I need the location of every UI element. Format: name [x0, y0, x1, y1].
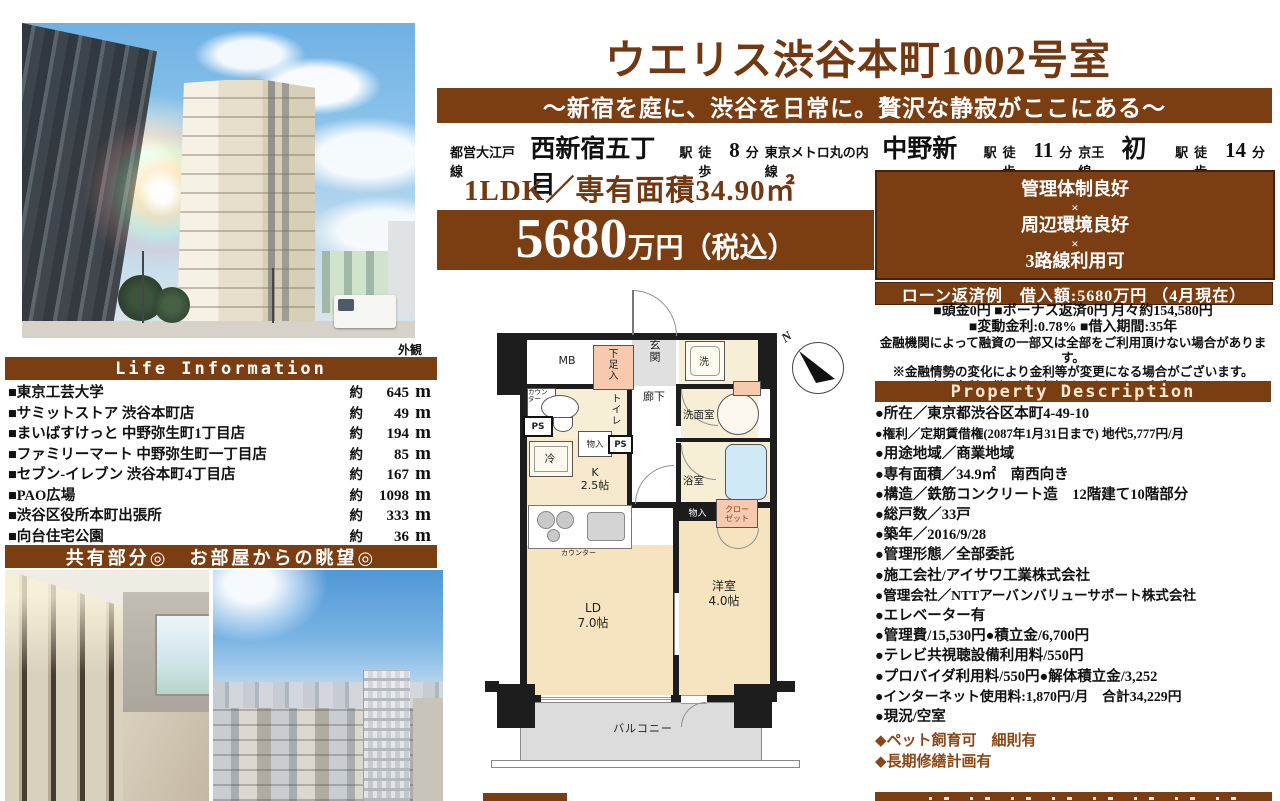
life-row: ■PAO広場 約 1098 m	[5, 484, 437, 505]
poi-name: ■PAO広場	[5, 484, 333, 505]
clipped-text-tops	[920, 797, 1237, 800]
powder-pink-cabinet	[733, 381, 761, 396]
property-item: ●管理費/15,530円●積立金/6,700円	[875, 626, 1275, 646]
property-item: ●総戸数／33戸	[875, 505, 1275, 525]
kitchen-k: K	[591, 466, 598, 479]
property-note: ◆ペット飼育可 細則有	[875, 731, 1275, 752]
property-item: ●所在／東京都渋谷区本町4-49-10	[875, 404, 1275, 424]
price-band: 5680 万円（税込）	[437, 210, 874, 270]
kitchen-size: 2.5帖	[581, 479, 610, 492]
fridge-label: 冷	[529, 441, 571, 475]
property-item: ●エレベーター有	[875, 606, 1275, 626]
door-arc	[632, 290, 677, 336]
wall-segment	[676, 438, 770, 442]
property-item: ●プロバイダ利用料/550円●解体積立金/3,252	[875, 667, 1275, 687]
wall-segment	[758, 333, 777, 388]
bedroom-label: 洋室 4.0帖	[699, 579, 749, 609]
photos-header: 共有部分◎ お部屋からの眺望◎	[5, 545, 437, 568]
hallway-label: 廊下	[632, 388, 676, 402]
door-leaf	[632, 290, 634, 335]
property-list: ●所在／東京都渋谷区本町4-49-10 ●権利／定期賃借権(2087年1月31日…	[875, 404, 1275, 727]
property-item: ●テレビ共視聴設備利用料/550円	[875, 646, 1275, 666]
highlight-box: 管理体制良好 × 周辺環境良好 × 3路線利用可	[875, 170, 1275, 280]
room-view-photo	[213, 570, 443, 801]
mid-building	[413, 698, 443, 801]
toilet-sink	[553, 417, 573, 432]
approx-label: 約	[333, 484, 363, 504]
distance-value: 85	[363, 447, 409, 464]
lobby-slat-wall	[5, 570, 123, 801]
closet-label-2: ゼット	[725, 514, 749, 523]
wall-segment	[770, 333, 777, 702]
balcony-edge-line	[491, 760, 800, 768]
property-item: ●専有面積／34.9㎡ 南西向き	[875, 465, 1275, 485]
poi-name: ■向台住宅公園	[5, 525, 333, 546]
approx-label: 約	[333, 381, 363, 401]
kitchen-label: K 2.5帖	[575, 466, 615, 492]
loan-line: ■変動金利:0.78% ■借入期間:35年	[875, 320, 1271, 336]
kitchen-sink	[587, 512, 625, 541]
property-item: ●インターネット使用料:1,870円/月 合計34,229円	[875, 687, 1275, 707]
compass: N	[788, 338, 844, 394]
toilet-label: トイレ	[607, 393, 622, 426]
loan-note: 金融機関によって融資の一部又は全部をご利用頂けない場合があります。	[875, 336, 1271, 365]
price-value: 5680	[515, 210, 627, 268]
clipped-bottom-bar	[875, 792, 1272, 801]
subject-building	[177, 78, 315, 328]
poi-name: ■東京工芸大学	[5, 381, 333, 402]
loan-line: ■頭金0円 ■ボーナス返済0円 月々約154,580円	[875, 304, 1271, 320]
price-unit: 万円（税込）	[627, 226, 795, 266]
truck-windshield	[338, 299, 354, 311]
bedroom-name: 洋室	[712, 579, 736, 593]
balcony-pillar	[734, 684, 772, 728]
highlight-line: 周辺環境良好	[1021, 215, 1129, 236]
highlight-line: 3路線利用可	[1026, 251, 1125, 272]
distance-value: 333	[363, 508, 409, 525]
stove-burner	[537, 511, 555, 529]
minutes-suffix: 分	[746, 142, 759, 161]
layout-area-line: 1LDK／専有面積34.90㎡	[464, 167, 796, 209]
life-row: ■向台住宅公園 約 36 m	[5, 525, 437, 546]
wall-segment	[485, 681, 499, 692]
bedroom-size: 4.0帖	[708, 594, 739, 608]
distance-unit: m	[409, 504, 437, 526]
life-row: ■セブン-イレブン 渋谷本町4丁目店 約 167 m	[5, 463, 437, 484]
closet-label-1: クロー	[725, 505, 749, 514]
minutes-suffix: 分	[1252, 142, 1265, 161]
balcony-pillar	[497, 684, 535, 728]
walk-minutes: 8	[729, 138, 740, 163]
station-suffix: 駅	[984, 142, 997, 161]
property-item: ●権利／定期賃借権(2087年1月31日まで) 地代5,777円/月	[875, 424, 1275, 444]
washer-label: 洗	[685, 341, 723, 379]
bath-label: 浴室	[683, 473, 719, 488]
property-item: ●用途地域／商業地域	[875, 444, 1275, 464]
distance-value: 194	[363, 426, 409, 443]
distance-unit: m	[409, 422, 437, 444]
walk-minutes: 11	[1033, 138, 1053, 163]
floor-plan: MB 下足入 玄関 洗 廊下 カウンター トイレ PS 物入 PS 洗面室 冷 …	[483, 283, 883, 783]
genkan-label: 玄関	[646, 339, 662, 363]
property-item: ●現況/空室	[875, 707, 1275, 727]
stove-burner	[556, 511, 574, 529]
compass-n-label: N	[778, 328, 795, 346]
ld-label: LD 7.0帖	[571, 601, 615, 631]
tree	[154, 287, 190, 323]
lobby-window	[155, 614, 209, 696]
poi-name: ■セブン-イレブン 渋谷本町4丁目店	[5, 463, 333, 484]
distance-unit: m	[409, 484, 437, 506]
station-access-line: 都営大江戸線 西新宿五丁目 駅 徒歩 8 分 東京メトロ丸の内線 中野新橋 駅 …	[450, 129, 1265, 162]
wall-segment	[676, 443, 681, 506]
approx-label: 約	[333, 525, 363, 545]
distance-unit: m	[409, 402, 437, 424]
exterior-photo	[22, 23, 415, 338]
life-row: ■まいばすけっと 中野弥生町1丁目店 約 194 m	[5, 422, 437, 443]
ld-size: 7.0帖	[577, 616, 608, 630]
property-note: ◆長期修繕計画有	[875, 752, 1275, 773]
stove-burner	[547, 529, 560, 542]
poi-name: ■渋谷区役所本町出張所	[5, 504, 333, 525]
distance-unit: m	[409, 381, 437, 403]
wall-segment	[520, 333, 527, 702]
window-sliding	[541, 695, 671, 702]
mb-label: MB	[545, 335, 589, 386]
utility-pole	[142, 251, 144, 323]
minutes-suffix: 分	[1059, 142, 1072, 161]
life-row: ■ファミリーマート 中野弥生町一丁目店 約 85 m	[5, 443, 437, 464]
subtitle-band: ～新宿を庭に、渋谷を日常に。贅沢な静寂がここにある～	[437, 88, 1272, 123]
distance-value: 1098	[363, 488, 409, 505]
property-header: Property Description	[875, 381, 1271, 402]
approx-label: 約	[333, 443, 363, 463]
distance-unit: m	[409, 525, 437, 547]
closet-box: クロー ゼット	[716, 499, 758, 528]
loan-header: ローン返済例 借入額:5680万円 （4月現在）	[875, 282, 1273, 305]
storage-mid-box: 物入	[679, 503, 716, 521]
shoe-box-label: 下足入	[604, 348, 619, 381]
poi-name: ■ファミリーマート 中野弥生町一丁目店	[5, 443, 333, 464]
common-area-photo	[5, 570, 209, 801]
kitchen-counter-label: カウンター	[561, 548, 611, 558]
property-item: ●管理会社／NTTアーバンバリューサポート株式会社	[875, 586, 1275, 606]
life-row: ■渋谷区役所本町出張所 約 333 m	[5, 504, 437, 525]
life-info-header: Life Information	[5, 357, 437, 380]
property-item: ●施工会社/アイサワ工業株式会社	[875, 566, 1275, 586]
property-item: ●築年／2016/9/28	[875, 525, 1275, 545]
sliding-door	[674, 593, 679, 655]
approx-label: 約	[333, 463, 363, 483]
ps-box: PS	[608, 435, 633, 454]
loan-note: ※金融情勢の変化により金利等が変更になる場合がございます。	[875, 365, 1271, 380]
life-row: ■サミットストア 渋谷本町店 約 49 m	[5, 402, 437, 423]
station-suffix: 駅	[679, 142, 692, 161]
highlight-line: 管理体制良好	[1021, 179, 1129, 200]
utility-pole	[272, 268, 274, 323]
clipped-brown-box	[483, 793, 567, 801]
highlight-x: ×	[1071, 236, 1078, 251]
storage-top-box: 物入	[578, 431, 612, 457]
distance-value: 49	[363, 406, 409, 423]
distance-value: 645	[363, 385, 409, 402]
flyer-page: 外観 ウエリス渋谷本町1002号室 ～新宿を庭に、渋谷を日常に。贅沢な静寂がここ…	[0, 0, 1280, 801]
approx-label: 約	[333, 402, 363, 422]
property-notes: ◆ペット飼育可 細則有 ◆長期修繕計画有	[875, 731, 1275, 773]
ps-box: PS	[523, 416, 553, 437]
balcony-label: バルコニー	[595, 720, 691, 736]
highlight-x: ×	[1071, 200, 1078, 215]
walk-minutes: 14	[1225, 138, 1246, 163]
wall-segment	[770, 681, 795, 692]
life-info-table: ■東京工芸大学 約 645 m ■サミットストア 渋谷本町店 約 49 m ■ま…	[5, 381, 437, 545]
ld-name: LD	[585, 601, 601, 615]
property-item: ●管理形態／全部委託	[875, 545, 1275, 565]
page-title: ウエリス渋谷本町1002号室	[443, 26, 1273, 86]
poi-name: ■まいばすけっと 中野弥生町1丁目店	[5, 422, 333, 443]
life-row: ■東京工芸大学 約 645 m	[5, 381, 437, 402]
approx-label: 約	[333, 422, 363, 442]
exterior-caption: 外観	[398, 341, 438, 358]
distance-unit: m	[409, 463, 437, 485]
approx-label: 約	[333, 504, 363, 524]
poi-name: ■サミットストア 渋谷本町店	[5, 402, 333, 423]
distance-unit: m	[409, 443, 437, 465]
powder-sink	[717, 393, 759, 435]
tall-building	[363, 670, 410, 801]
station-suffix: 駅	[1175, 142, 1188, 161]
property-item: ●構造／鉄筋コンクリート造 12階建て10階部分	[875, 485, 1275, 505]
bathtub	[725, 444, 767, 500]
distance-value: 167	[363, 467, 409, 484]
